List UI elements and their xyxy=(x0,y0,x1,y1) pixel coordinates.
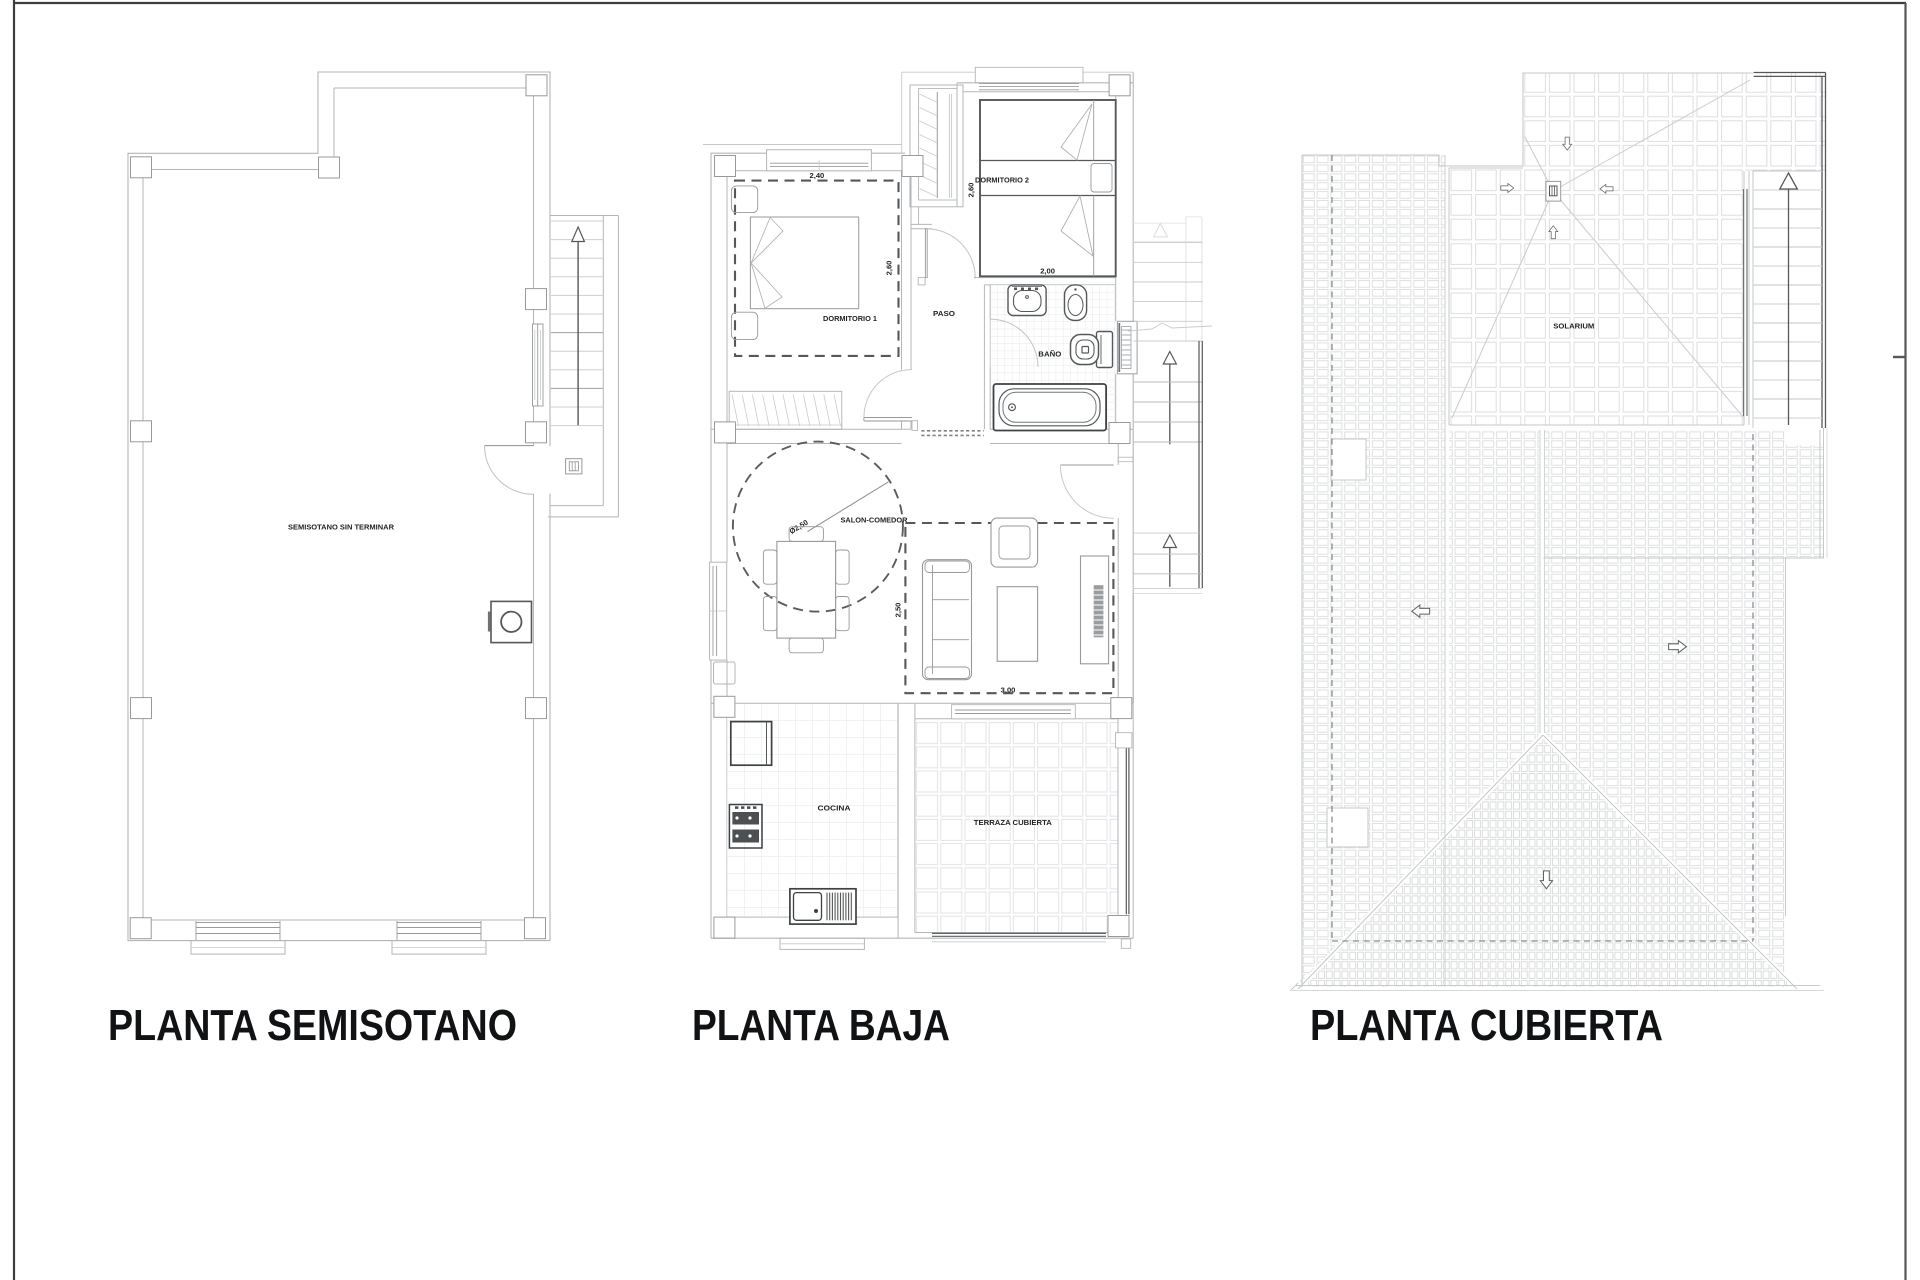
svg-text:COCINA: COCINA xyxy=(818,804,852,813)
svg-text:PASO: PASO xyxy=(933,309,955,318)
svg-text:PLANTA SEMISOTANO: PLANTA SEMISOTANO xyxy=(108,1001,517,1050)
svg-text:SOLARIUM: SOLARIUM xyxy=(1553,322,1594,331)
svg-text:DORMITORIO 2: DORMITORIO 2 xyxy=(975,176,1029,185)
svg-text:2,60: 2,60 xyxy=(967,183,976,198)
svg-text:BAÑO: BAÑO xyxy=(1038,350,1061,359)
svg-text:2,00: 2,00 xyxy=(1040,267,1055,276)
svg-text:PLANTA CUBIERTA: PLANTA CUBIERTA xyxy=(1310,1001,1663,1050)
svg-text:SALON-COMEDOR: SALON-COMEDOR xyxy=(841,516,909,525)
svg-text:2,60: 2,60 xyxy=(885,261,894,276)
svg-text:TERRAZA CUBIERTA: TERRAZA CUBIERTA xyxy=(974,818,1053,827)
svg-text:SEMISOTANO SIN TERMINAR: SEMISOTANO SIN TERMINAR xyxy=(288,523,395,532)
svg-text:PLANTA BAJA: PLANTA BAJA xyxy=(692,1001,950,1050)
svg-text:2,40: 2,40 xyxy=(810,171,825,180)
svg-text:2,50: 2,50 xyxy=(894,603,903,618)
svg-text:DORMITORIO 1: DORMITORIO 1 xyxy=(823,314,878,323)
svg-text:3,00: 3,00 xyxy=(1001,686,1016,695)
